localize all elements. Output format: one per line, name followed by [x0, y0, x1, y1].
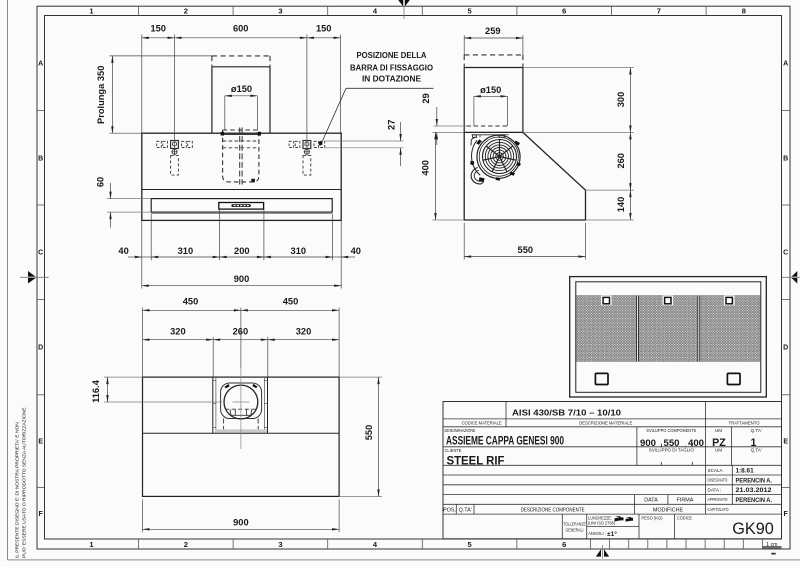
svg-text:PERENCIN A.: PERENCIN A. — [736, 497, 773, 504]
svg-text:ø150: ø150 — [231, 84, 252, 94]
svg-text:450: 450 — [183, 297, 199, 307]
svg-text:310: 310 — [178, 246, 194, 256]
svg-text:ASSIEME CAPPA GENESI 900: ASSIEME CAPPA GENESI 900 — [446, 434, 564, 447]
svg-text:PERENCIN A.: PERENCIN A. — [736, 477, 773, 484]
svg-text:UM: UM — [715, 428, 722, 433]
svg-text:2: 2 — [184, 540, 188, 549]
svg-text:Q.TA': Q.TA' — [459, 507, 472, 513]
svg-text:5: 5 — [468, 540, 472, 549]
svg-text:SVILUPPO COMPONENTE: SVILUPPO COMPONENTE — [646, 428, 696, 433]
svg-text:900: 900 — [640, 438, 656, 449]
svg-text:550: 550 — [364, 425, 374, 441]
svg-text:320: 320 — [170, 327, 186, 337]
svg-text:3: 3 — [278, 7, 282, 16]
svg-text:APPROVATO: APPROVATO — [708, 497, 728, 502]
svg-text:B: B — [783, 156, 788, 163]
svg-text:1: 1 — [89, 7, 93, 16]
svg-text:27: 27 — [387, 120, 397, 130]
svg-text:200: 200 — [234, 246, 250, 256]
svg-text:F: F — [39, 511, 44, 518]
svg-text:F: F — [784, 511, 789, 518]
svg-text:450: 450 — [283, 297, 299, 307]
svg-text:AISI 430/SB 7/10 – 10/10: AISI 430/SB 7/10 – 10/10 — [512, 407, 621, 417]
svg-text:116.4: 116.4 — [91, 379, 101, 403]
svg-text:550: 550 — [518, 245, 534, 255]
svg-text:FIRMA: FIRMA — [677, 498, 694, 504]
svg-text:6: 6 — [562, 540, 566, 549]
svg-text:600: 600 — [233, 24, 249, 34]
svg-text:ANGOLI :: ANGOLI : — [588, 531, 606, 536]
svg-text:2: 2 — [184, 7, 188, 16]
svg-text:40: 40 — [351, 246, 361, 256]
svg-text:GENERALI: GENERALI — [566, 527, 584, 532]
svg-text:DATA: DATA — [644, 498, 658, 504]
svg-text:7: 7 — [657, 7, 661, 16]
svg-text:TOLLERANZE: TOLLERANZE — [563, 521, 586, 526]
svg-text:Prolunga 350: Prolunga 350 — [96, 66, 106, 124]
svg-text:,: , — [685, 442, 687, 449]
svg-text:DATA :: DATA : — [708, 487, 722, 492]
svg-text:259: 259 — [485, 26, 501, 36]
svg-text:CLIENTE: CLIENTE — [445, 448, 462, 453]
svg-text:MODIFICHE: MODIFICHE — [653, 507, 684, 513]
svg-text:900: 900 — [234, 274, 250, 284]
svg-text:CODICE: CODICE — [677, 516, 692, 521]
svg-text:BARRA DI FISSAGGIO: BARRA DI FISSAGGIO — [350, 62, 433, 72]
svg-text:±1°: ±1° — [607, 530, 617, 538]
svg-text:310: 310 — [291, 246, 307, 256]
svg-text:1: 1 — [89, 540, 93, 549]
svg-text:CODICE MATERIALE: CODICE MATERIALE — [462, 421, 502, 426]
svg-text:GK90: GK90 — [732, 519, 774, 538]
svg-text:260: 260 — [616, 153, 626, 169]
svg-text:6: 6 — [562, 7, 566, 16]
svg-text:PESO (KG): PESO (KG) — [642, 516, 663, 521]
svg-text:CAPITOLATO: CAPITOLATO — [708, 507, 729, 512]
svg-text:B: B — [38, 156, 43, 163]
svg-text:D: D — [38, 345, 43, 352]
svg-text:IN DOTAZIONE: IN DOTAZIONE — [362, 74, 421, 84]
svg-text:Q.TA': Q.TA' — [751, 428, 762, 433]
svg-text:C: C — [783, 250, 788, 257]
svg-text:150: 150 — [316, 24, 332, 34]
svg-text:E: E — [38, 439, 43, 446]
svg-text:E: E — [783, 439, 788, 446]
svg-text:ø150: ø150 — [480, 85, 501, 95]
svg-text:320: 320 — [296, 327, 312, 337]
svg-text:STEEL RIF: STEEL RIF — [447, 454, 505, 467]
svg-text:400: 400 — [688, 438, 704, 449]
svg-text:(UNI ISO 2768): (UNI ISO 2768) — [588, 521, 615, 526]
svg-text:DESCRIZIONE COMPONENTE: DESCRIZIONE COMPONENTE — [521, 507, 585, 513]
svg-text:3: 3 — [278, 540, 282, 549]
svg-text:DESCRIZIONE MATERIALE: DESCRIZIONE MATERIALE — [579, 421, 632, 426]
svg-text:1: 1 — [751, 437, 757, 449]
svg-text:IL PRESENTE DISEGNO E' DI NOST: IL PRESENTE DISEGNO E' DI NOSTRA PROPRIE… — [15, 422, 21, 558]
svg-text:150: 150 — [150, 24, 166, 34]
svg-text:5: 5 — [468, 7, 472, 16]
svg-text:A: A — [38, 61, 43, 68]
svg-text:D: D — [783, 345, 788, 352]
svg-text:900: 900 — [233, 517, 249, 527]
svg-text:60: 60 — [96, 177, 106, 187]
svg-text:,: , — [661, 442, 663, 449]
svg-text:40: 40 — [118, 246, 128, 256]
svg-text:8: 8 — [742, 7, 746, 16]
svg-text:300: 300 — [616, 92, 626, 108]
svg-text:SCALA: SCALA — [708, 468, 724, 473]
svg-text:140: 140 — [616, 197, 626, 213]
svg-text:A: A — [783, 61, 788, 68]
svg-text:DENOMINAZIONE: DENOMINAZIONE — [445, 428, 476, 433]
svg-text:C: C — [38, 250, 43, 257]
svg-text:PZ: PZ — [712, 437, 726, 449]
svg-text:PUO' ESSERE USATO O RIPRODOTTO: PUO' ESSERE USATO O RIPRODOTTO SENZA AUT… — [22, 406, 28, 558]
svg-text:DISEGNATO: DISEGNATO — [708, 478, 728, 483]
svg-text:1:8.61: 1:8.61 — [736, 468, 755, 475]
svg-text:550: 550 — [663, 438, 679, 449]
svg-text:TRATTAMENTO: TRATTAMENTO — [729, 421, 760, 426]
svg-text:29: 29 — [421, 93, 431, 103]
svg-text:400: 400 — [421, 160, 431, 176]
svg-text:POSIZIONE DELLA: POSIZIONE DELLA — [357, 50, 427, 60]
svg-text:21.03.2012: 21.03.2012 — [736, 487, 772, 494]
svg-text:260: 260 — [233, 327, 249, 337]
svg-text:POS.: POS. — [443, 507, 456, 513]
